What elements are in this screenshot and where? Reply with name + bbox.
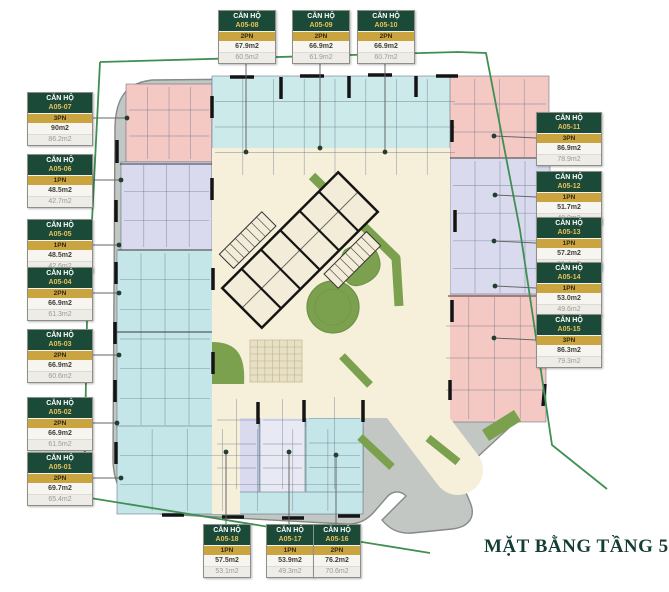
unit-label-A05-15: CĂN HỘA05-153PN86.3m279.3m2: [536, 314, 602, 368]
unit-id: A05-11: [537, 123, 601, 132]
unit-area-gross: 66.9m2: [28, 298, 92, 309]
unit-label-A05-04: CĂN HỘA05-042PN66.9m261.3m2: [27, 267, 93, 321]
unit-label-A05-07: CĂN HỘA05-073PN90m286.2m2: [27, 92, 93, 146]
unit-id: A05-05: [28, 230, 92, 239]
unit-id: A05-17: [267, 535, 313, 544]
unit-label-type: CĂN HỘ: [314, 526, 360, 535]
unit-label-type: CĂN HỘ: [28, 399, 92, 408]
unit-area-net: 86.2m2: [28, 134, 92, 145]
unit-label-A05-06: CĂN HỘA05-061PN48.5m242.7m2: [27, 154, 93, 208]
unit-id: A05-03: [28, 340, 92, 349]
unit-label-type: CĂN HỘ: [537, 219, 601, 228]
unit-label-A05-10: CĂN HỘA05-102PN66.9m260.7m2: [357, 10, 415, 64]
unit-bedrooms: 2PN: [314, 545, 360, 555]
unit-area-gross: 48.5m2: [28, 250, 92, 261]
floor-plan-page: CĂN HỘA05-073PN90m286.2m2CĂN HỘA05-061PN…: [0, 0, 669, 592]
unit-bedrooms: 1PN: [28, 240, 92, 250]
unit-label-A05-14: CĂN HỘA05-141PN53.0m249.6m2: [536, 262, 602, 316]
unit-area-net: 60.6m2: [28, 371, 92, 382]
unit-area-net: 42.7m2: [28, 196, 92, 207]
unit-label-A05-05: CĂN HỘA05-051PN48.5m242.6m2: [27, 219, 93, 273]
unit-label-header: CĂN HỘA05-02: [28, 398, 92, 418]
unit-label-type: CĂN HỘ: [537, 264, 601, 273]
unit-label-type: CĂN HỘ: [28, 269, 92, 278]
unit-label-A05-11: CĂN HỘA05-113PN86.9m278.9m2: [536, 112, 602, 166]
unit-area-net: 53.1m2: [204, 566, 250, 577]
unit-area-gross: 66.9m2: [293, 41, 349, 52]
unit-label-A05-01: CĂN HỘA05-012PN69.7m265.4m2: [27, 452, 93, 506]
unit-label-type: CĂN HỘ: [537, 173, 601, 182]
unit-id: A05-16: [314, 535, 360, 544]
unit-label-header: CĂN HỘA05-15: [537, 315, 601, 335]
unit-id: A05-06: [28, 165, 92, 174]
unit-bedrooms: 2PN: [28, 288, 92, 298]
unit-label-type: CĂN HỘ: [267, 526, 313, 535]
unit-label-header: CĂN HỘA05-01: [28, 453, 92, 473]
unit-id: A05-14: [537, 273, 601, 282]
unit-label-A05-17: CĂN HỘA05-171PN53.9m249.3m2: [266, 524, 314, 578]
unit-bedrooms: 3PN: [28, 113, 92, 123]
unit-id: A05-15: [537, 325, 601, 334]
unit-area-net: 65.4m2: [28, 494, 92, 505]
unit-label-header: CĂN HỘA05-11: [537, 113, 601, 133]
unit-label-header: CĂN HỘA05-17: [267, 525, 313, 545]
unit-label-type: CĂN HỘ: [204, 526, 250, 535]
unit-label-A05-18: CĂN HỘA05-181PN57.5m253.1m2: [203, 524, 251, 578]
unit-label-A05-09: CĂN HỘA05-092PN66.9m261.9m2: [292, 10, 350, 64]
unit-id: A05-04: [28, 278, 92, 287]
unit-label-type: CĂN HỘ: [537, 316, 601, 325]
unit-label-header: CĂN HỘA05-14: [537, 263, 601, 283]
unit-label-type: CĂN HỘ: [28, 94, 92, 103]
unit-bedrooms: 1PN: [28, 175, 92, 185]
unit-label-header: CĂN HỘA05-07: [28, 93, 92, 113]
unit-label-type: CĂN HỘ: [28, 221, 92, 230]
unit-id: A05-02: [28, 408, 92, 417]
unit-area-gross: 86.3m2: [537, 345, 601, 356]
unit-area-net: 60.7m2: [358, 52, 414, 63]
unit-area-gross: 86.9m2: [537, 143, 601, 154]
unit-label-A05-16: CĂN HỘA05-162PN76.2m270.6m2: [313, 524, 361, 578]
unit-area-gross: 48.5m2: [28, 185, 92, 196]
unit-label-header: CĂN HỘA05-04: [28, 268, 92, 288]
unit-area-gross: 90m2: [28, 123, 92, 134]
unit-bedrooms: 1PN: [537, 192, 601, 202]
unit-bedrooms: 2PN: [28, 473, 92, 483]
unit-label-A05-02: CĂN HỘA05-022PN66.9m261.5m2: [27, 397, 93, 451]
unit-bedrooms: 2PN: [28, 418, 92, 428]
unit-label-type: CĂN HỘ: [219, 12, 275, 21]
unit-bedrooms: 2PN: [219, 31, 275, 41]
unit-label-header: CĂN HỘA05-03: [28, 330, 92, 350]
unit-id: A05-10: [358, 21, 414, 30]
unit-area-gross: 57.5m2: [204, 555, 250, 566]
unit-bedrooms: 1PN: [537, 283, 601, 293]
unit-id: A05-08: [219, 21, 275, 30]
unit-bedrooms: 1PN: [267, 545, 313, 555]
unit-area-gross: 67.9m2: [219, 41, 275, 52]
unit-bedrooms: 1PN: [204, 545, 250, 555]
unit-area-gross: 53.0m2: [537, 293, 601, 304]
unit-label-type: CĂN HỘ: [358, 12, 414, 21]
unit-id: A05-12: [537, 182, 601, 191]
unit-label-type: CĂN HỘ: [28, 454, 92, 463]
unit-label-header: CĂN HỘA05-12: [537, 172, 601, 192]
unit-area-gross: 66.9m2: [28, 360, 92, 371]
unit-area-gross: 51.7m2: [537, 202, 601, 213]
unit-label-type: CĂN HỘ: [28, 331, 92, 340]
unit-area-gross: 76.2m2: [314, 555, 360, 566]
unit-area-gross: 69.7m2: [28, 483, 92, 494]
unit-area-gross: 66.9m2: [358, 41, 414, 52]
unit-area-gross: 57.2m2: [537, 248, 601, 259]
unit-area-net: 60.5m2: [219, 52, 275, 63]
unit-id: A05-18: [204, 535, 250, 544]
unit-bedrooms: 3PN: [537, 133, 601, 143]
unit-bedrooms: 2PN: [358, 31, 414, 41]
unit-bedrooms: 3PN: [537, 335, 601, 345]
unit-area-gross: 66.9m2: [28, 428, 92, 439]
unit-label-type: CĂN HỘ: [28, 156, 92, 165]
unit-label-type: CĂN HỘ: [293, 12, 349, 21]
unit-label-header: CĂN HỘA05-05: [28, 220, 92, 240]
unit-bedrooms: 1PN: [537, 238, 601, 248]
unit-bedrooms: 2PN: [293, 31, 349, 41]
unit-label-header: CĂN HỘA05-10: [358, 11, 414, 31]
unit-id: A05-13: [537, 228, 601, 237]
unit-bedrooms: 2PN: [28, 350, 92, 360]
unit-area-net: 79.3m2: [537, 356, 601, 367]
unit-area-net: 70.6m2: [314, 566, 360, 577]
unit-area-net: 61.3m2: [28, 309, 92, 320]
unit-label-header: CĂN HỘA05-18: [204, 525, 250, 545]
unit-label-A05-03: CĂN HỘA05-032PN66.9m260.6m2: [27, 329, 93, 383]
unit-label-header: CĂN HỘA05-16: [314, 525, 360, 545]
unit-area-net: 78.9m2: [537, 154, 601, 165]
unit-id: A05-09: [293, 21, 349, 30]
plan-title: MẶT BẰNG TẦNG 5: [484, 536, 666, 558]
unit-area-gross: 53.9m2: [267, 555, 313, 566]
unit-label-header: CĂN HỘA05-08: [219, 11, 275, 31]
unit-label-type: CĂN HỘ: [537, 114, 601, 123]
unit-area-net: 61.9m2: [293, 52, 349, 63]
unit-area-net: 61.5m2: [28, 439, 92, 450]
unit-label-header: CĂN HỘA05-09: [293, 11, 349, 31]
unit-id: A05-01: [28, 463, 92, 472]
unit-label-A05-08: CĂN HỘA05-082PN67.9m260.5m2: [218, 10, 276, 64]
unit-area-net: 49.3m2: [267, 566, 313, 577]
unit-id: A05-07: [28, 103, 92, 112]
unit-label-header: CĂN HỘA05-13: [537, 218, 601, 238]
unit-label-header: CĂN HỘA05-06: [28, 155, 92, 175]
